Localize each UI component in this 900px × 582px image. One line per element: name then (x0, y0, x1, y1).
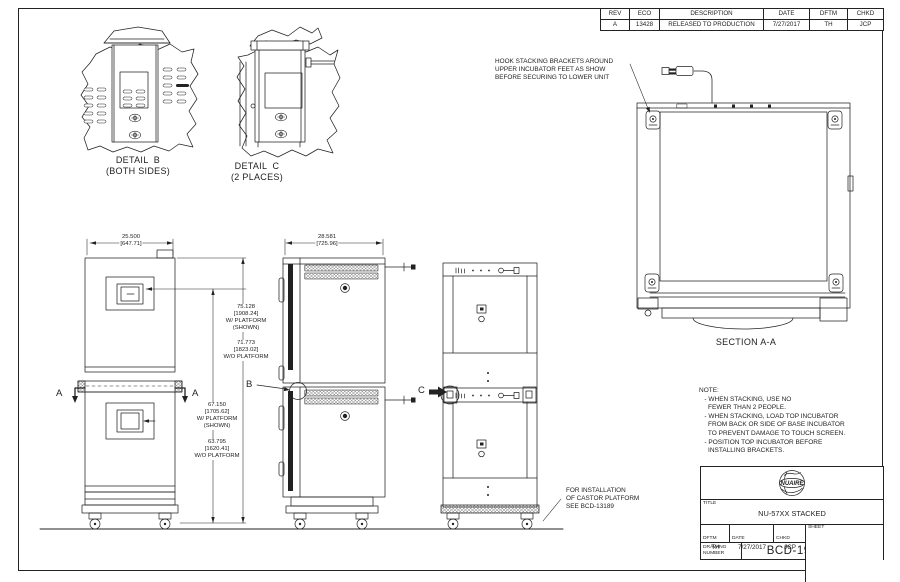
hook-bracket-icon (828, 111, 842, 129)
title-block: NUAIRE TITLE NU-57XX STACKED DFTM TH DAT… (700, 466, 884, 560)
phillips-screw-icon (129, 131, 140, 139)
caster-icon (521, 513, 533, 529)
side-view (279, 258, 416, 529)
vent-grille (305, 398, 378, 404)
dim-side-width: 28.581 [725.96] (315, 234, 338, 248)
section-aa-view (637, 67, 853, 330)
rev-value: A (601, 20, 629, 30)
stacking-bracket (523, 387, 536, 403)
castor-note-leader (543, 499, 561, 521)
rev-header: REV (601, 9, 629, 19)
hook-stacking-note: HOOK STACKING BRACKETS AROUND UPPER INCU… (495, 58, 613, 82)
dim-overall-with-platform: 75.128 [1908.24] W/ PLATFORM (SHOWN) (225, 304, 267, 332)
power-cord-icon (404, 396, 416, 404)
caster-icon (294, 513, 306, 529)
revision-table-row: A 13428 RELEASED TO PRODUCTION 7/27/2017… (601, 19, 883, 30)
caster-icon (159, 513, 171, 529)
dftm-header: DFTM (809, 9, 847, 19)
door-hinge-bar (288, 264, 293, 370)
door-hinge-bar (288, 391, 293, 491)
stacking-bracket (112, 45, 158, 142)
caster-icon (356, 513, 368, 529)
hook-bracket-icon (829, 274, 843, 292)
date-label: DATE (732, 536, 745, 541)
power-cord-icon (662, 67, 712, 104)
revision-table: REV ECO DESCRIPTION DATE DFTM CHKD A 134… (600, 8, 884, 31)
knob-icon (341, 284, 350, 293)
dftm-cell: DFTM TH (701, 525, 729, 542)
date-cell: DATE 7/27/2017 (729, 525, 773, 542)
section-aa-label: SECTION A-A (716, 337, 776, 348)
vent-grille (305, 265, 378, 271)
caster-icon (89, 513, 101, 529)
stacking-bracket (444, 387, 457, 403)
nuaire-logo: NUAIRE (701, 467, 883, 499)
phillips-screw-icon (129, 114, 140, 122)
eco-value: 13428 (629, 20, 659, 30)
dftm-value: TH (809, 20, 847, 30)
knob-icon (341, 412, 350, 421)
connector-panel (456, 393, 519, 399)
dark-slot (176, 84, 189, 87)
drawing-sheet: DETAIL B (BOTH SIDES) DETAIL C (2 PLACES… (0, 0, 900, 582)
drawing-title: NU-57XX STACKED (701, 500, 883, 518)
dim-front-width: 25.500 [647.71] (119, 234, 142, 248)
dim-stack-without-platform: 63.795 [1620.41] W/O PLATFORM (193, 439, 240, 460)
phillips-screw-icon (275, 130, 286, 138)
dim-stack-with-platform: 67.150 [1705.62] W/ PLATFORM (SHOWN) (196, 402, 238, 430)
castor-platform (286, 506, 378, 513)
vent-grille (305, 273, 378, 279)
section-marker-a-right: A (192, 388, 198, 399)
title-label: TITLE (703, 501, 716, 507)
chkd-value: JCP (847, 20, 883, 30)
stacking-platform (78, 381, 182, 392)
detail-b-leader (257, 385, 290, 391)
castor-platform (82, 505, 178, 513)
dftm-label: DFTM (703, 536, 717, 541)
description-header: DESCRIPTION (659, 9, 763, 19)
touchscreen-top (106, 277, 154, 310)
date-value: 7/27/2017 (763, 20, 809, 30)
vent-grille (305, 390, 378, 396)
power-cord-icon (404, 263, 416, 271)
front-view (78, 250, 182, 529)
detail-b-label: DETAIL B (BOTH SIDES) (106, 155, 170, 177)
top-vent-cap (157, 250, 173, 258)
castor-platform-note: FOR INSTALLATION OF CASTOR PLATFORM SEE … (566, 487, 639, 511)
phillips-screw-icon (275, 113, 286, 121)
detail-marker-b: B (246, 379, 252, 390)
title-info-row: DFTM TH DATE 7/27/2017 CHKD JCP SHEET 1 … (701, 524, 883, 542)
back-view (441, 263, 539, 529)
touchscreen-bottom (106, 403, 155, 439)
detail-marker-c: C (418, 385, 425, 396)
chkd-label: CHKD (776, 536, 790, 541)
revision-table-header: REV ECO DESCRIPTION DATE DFTM CHKD (601, 9, 883, 19)
vent-cap-icon (104, 27, 170, 43)
sheet-label: SHEET (808, 525, 824, 531)
dim-overall-without-platform: 71.773 [1823.02] W/O PLATFORM (222, 340, 269, 361)
connector-panel (456, 268, 519, 274)
castor-platform (441, 505, 539, 513)
detail-c-view (237, 27, 340, 157)
chkd-header: CHKD (847, 9, 883, 19)
logo-text: NUAIRE (780, 481, 804, 487)
section-marker-a-left: A (56, 388, 62, 399)
drawing-number-label: DRAWING NUMBER (701, 543, 741, 559)
caster-icon (447, 513, 459, 529)
detail-c-label: DETAIL C (2 PLACES) (231, 161, 283, 183)
sheet-cell: SHEET 1 OF 1 (805, 525, 883, 582)
stacking-notes: NOTE: - WHEN STACKING, USE NO FEWER THAN… (699, 387, 845, 456)
hook-note-leader (630, 64, 650, 113)
hook-bracket-icon (645, 274, 659, 292)
title-row: TITLE NU-57XX STACKED (701, 499, 883, 524)
section-cut-arrows (72, 388, 188, 403)
eco-header: ECO (629, 9, 659, 19)
description-value: RELEASED TO PRODUCTION (659, 20, 763, 30)
hook-bracket-icon (646, 111, 660, 129)
date-header: DATE (763, 9, 809, 19)
chkd-cell: CHKD JCP (773, 525, 805, 542)
detail-b-view (81, 27, 198, 152)
